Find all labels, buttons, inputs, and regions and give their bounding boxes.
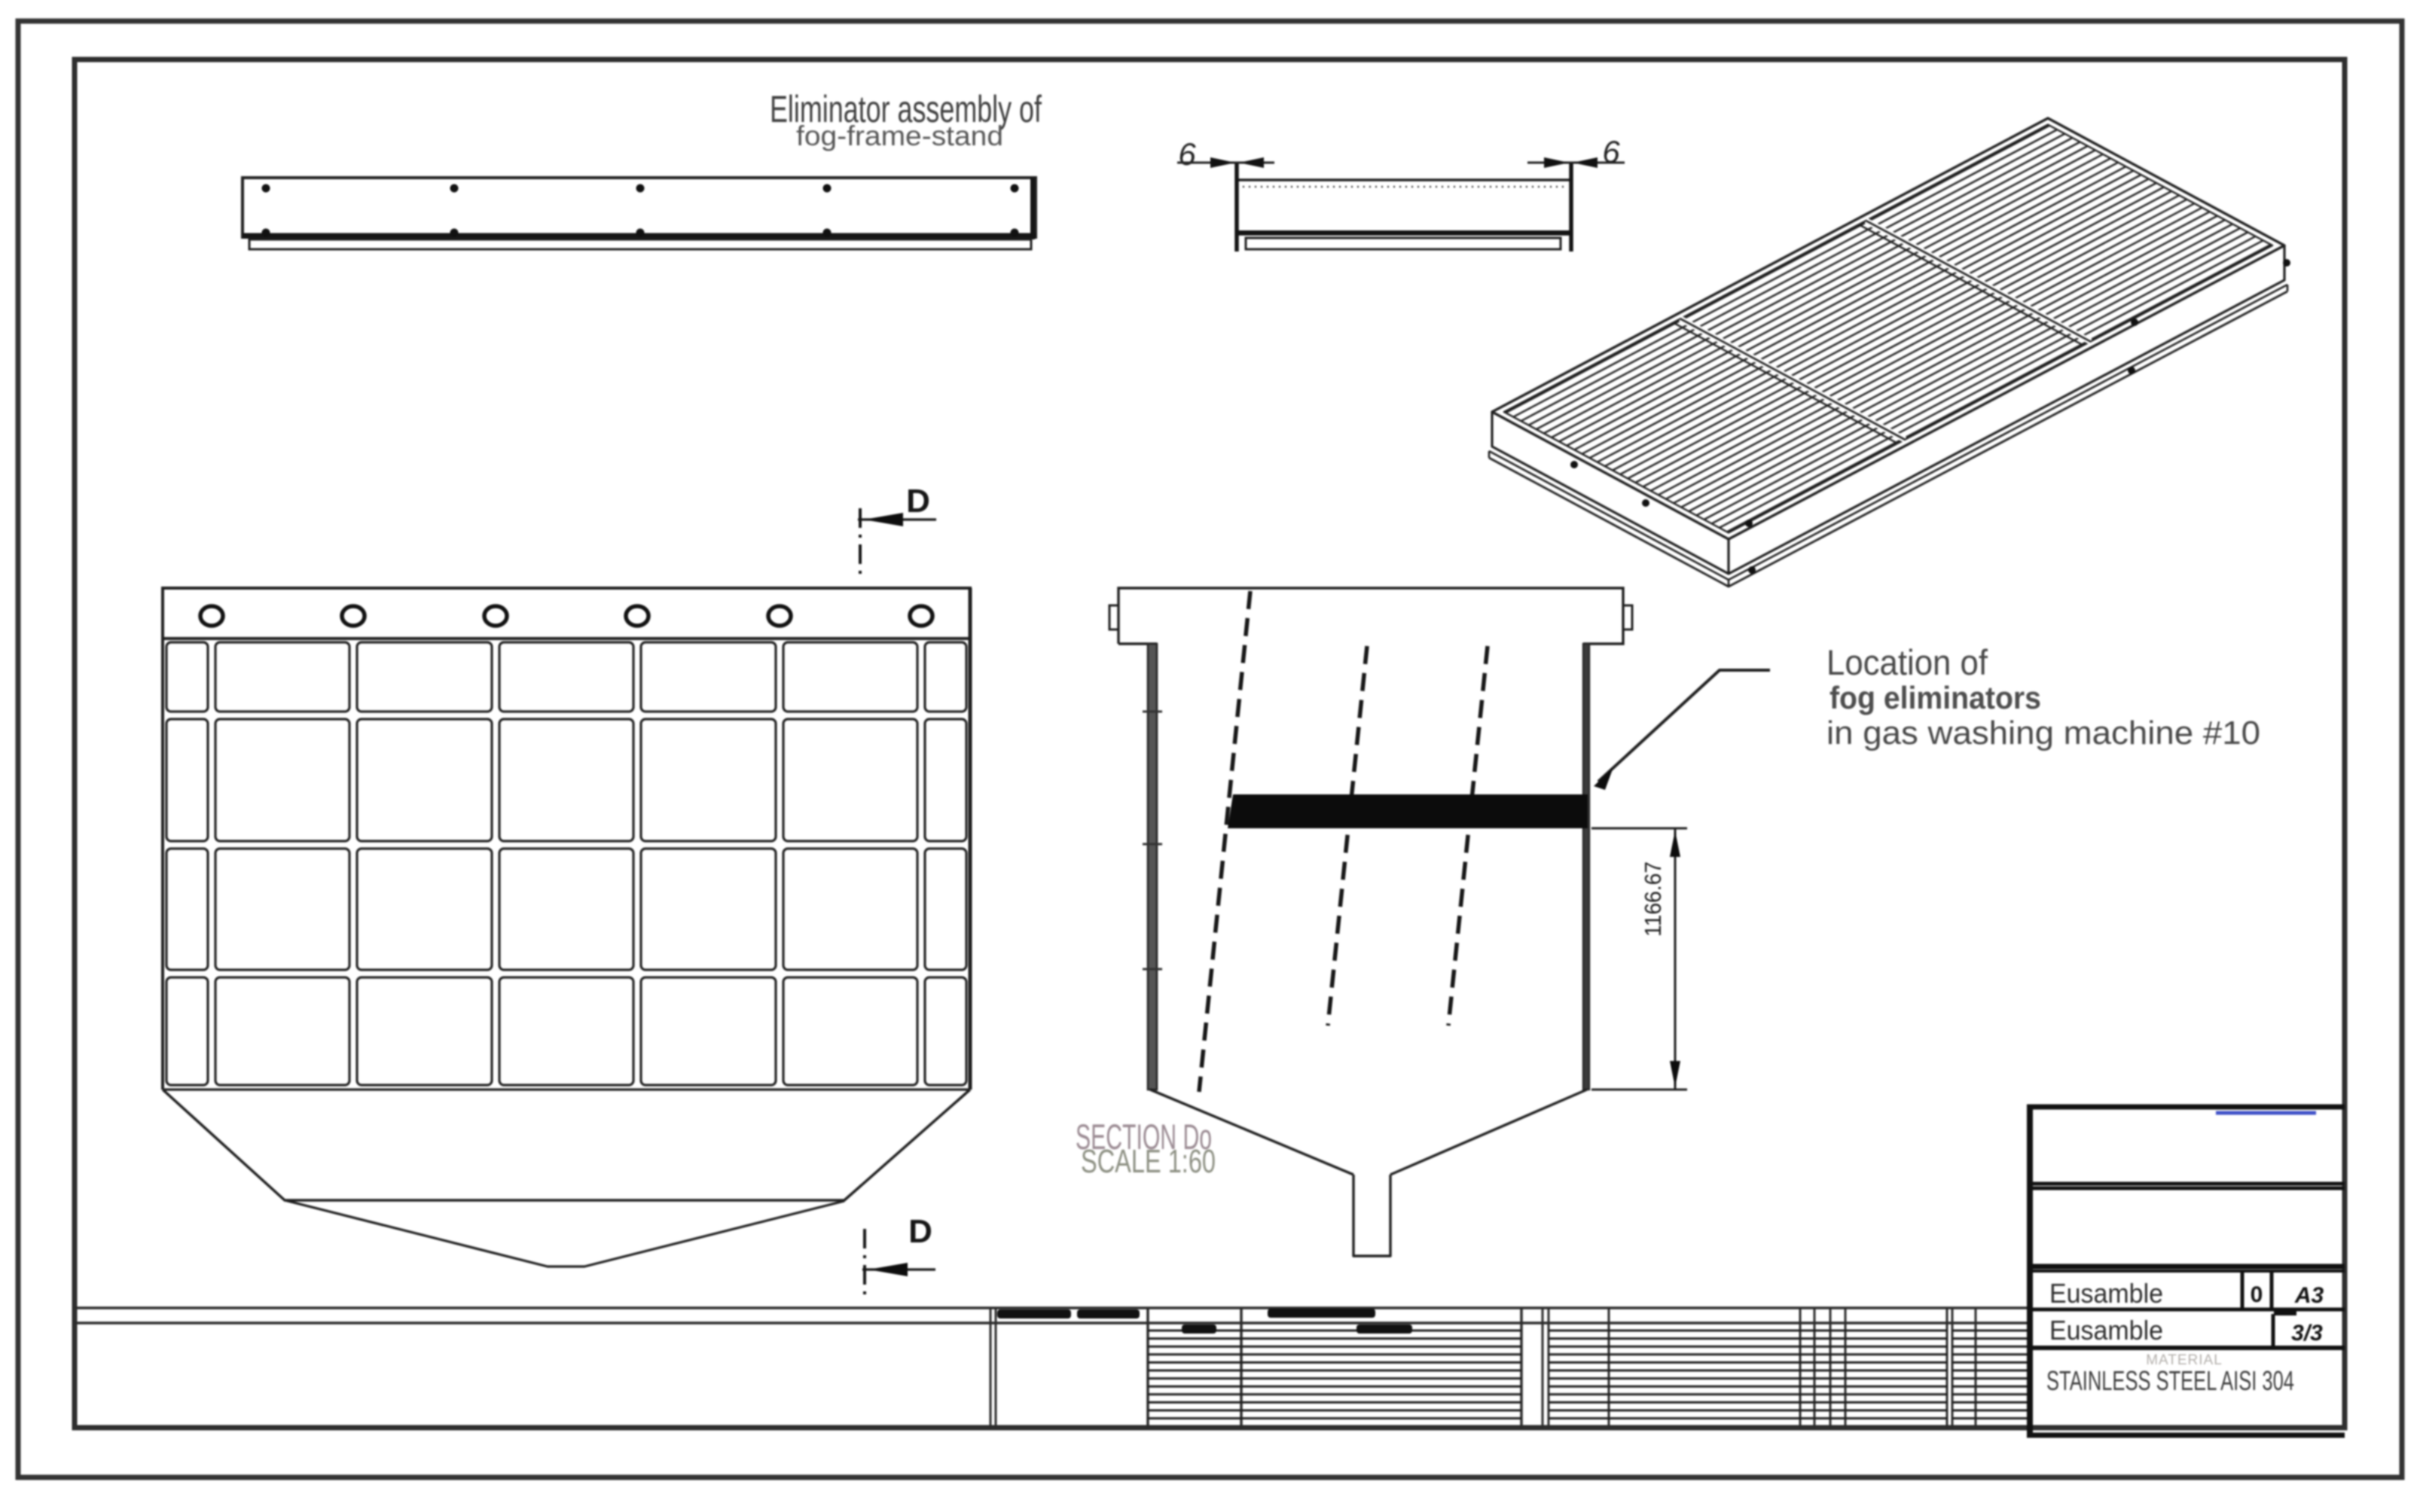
svg-text:0: 0 xyxy=(2251,1282,2263,1307)
svg-text:A3: A3 xyxy=(2294,1283,2324,1308)
svg-text:D: D xyxy=(908,1213,932,1250)
svg-text:Eusamble: Eusamble xyxy=(2049,1315,2163,1346)
svg-text:Location of: Location of xyxy=(1826,642,1988,682)
svg-text:STAINLESS STEEL AISI 304: STAINLESS STEEL AISI 304 xyxy=(2046,1365,2294,1396)
svg-text:SCALE 1:60: SCALE 1:60 xyxy=(1081,1143,1216,1180)
svg-text:D: D xyxy=(906,483,930,520)
svg-text:Eusamble: Eusamble xyxy=(2049,1278,2163,1309)
svg-text:6: 6 xyxy=(1602,134,1620,169)
svg-text:fog-frame-stand: fog-frame-stand xyxy=(796,120,1003,151)
svg-text:6: 6 xyxy=(1178,136,1196,172)
svg-text:in gas washing machine #10: in gas washing machine #10 xyxy=(1826,715,2260,751)
svg-text:fog eliminators: fog eliminators xyxy=(1829,680,2041,715)
svg-text:1166.67: 1166.67 xyxy=(1640,861,1666,937)
svg-text:3/3: 3/3 xyxy=(2291,1321,2323,1346)
